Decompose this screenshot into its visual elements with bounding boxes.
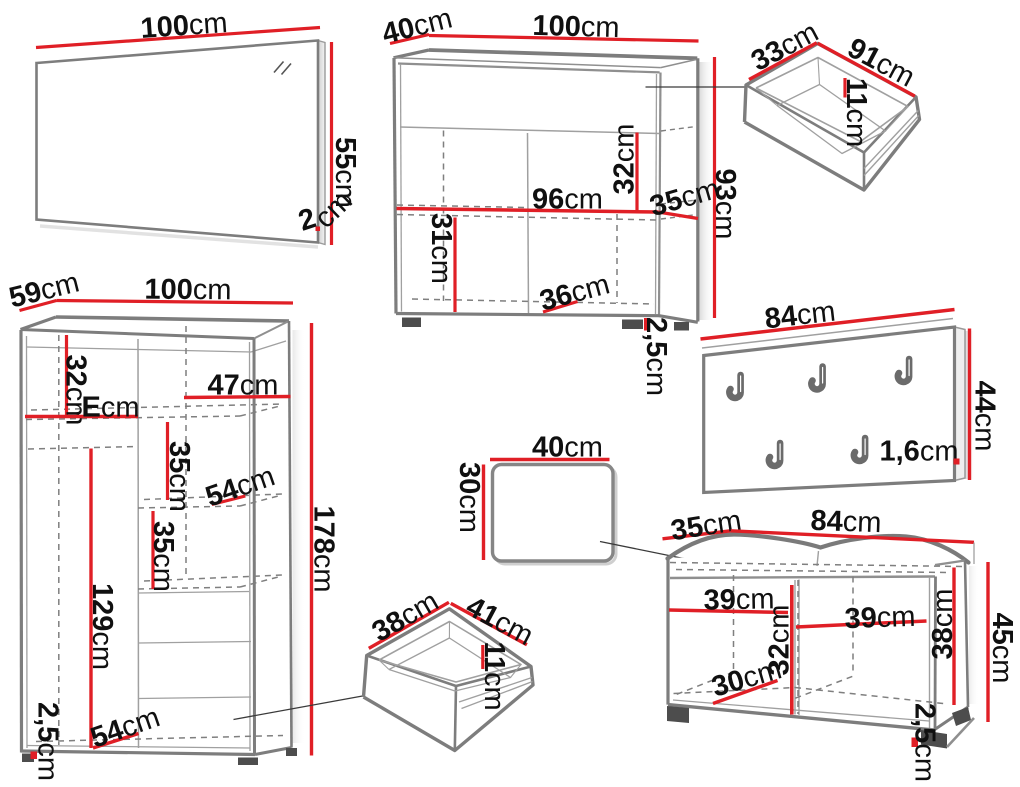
svg-text:38cm: 38cm xyxy=(927,589,959,660)
svg-text:39cm: 39cm xyxy=(844,601,916,635)
svg-text:30cm: 30cm xyxy=(453,462,485,533)
svg-text:45cm: 45cm xyxy=(986,613,1018,684)
svg-text:Ecm: Ecm xyxy=(81,392,139,424)
svg-text:32cm: 32cm xyxy=(609,124,641,195)
svg-text:31cm: 31cm xyxy=(425,213,457,284)
svg-text:35cm: 35cm xyxy=(163,441,195,512)
svg-text:44cm: 44cm xyxy=(969,381,1001,452)
svg-text:129cm: 129cm xyxy=(86,583,118,670)
svg-text:96cm: 96cm xyxy=(532,184,603,216)
svg-text:178cm: 178cm xyxy=(308,505,340,592)
svg-text:2,5cm: 2,5cm xyxy=(32,702,64,781)
svg-text:100cm: 100cm xyxy=(532,10,620,44)
svg-text:100cm: 100cm xyxy=(140,7,229,45)
svg-text:35cm: 35cm xyxy=(147,521,179,592)
svg-text:40cm: 40cm xyxy=(532,432,603,464)
svg-text:11cm: 11cm xyxy=(840,78,872,147)
svg-text:2,5cm: 2,5cm xyxy=(640,317,672,396)
svg-text:47cm: 47cm xyxy=(208,370,279,402)
svg-text:2,5cm: 2,5cm xyxy=(909,703,941,782)
svg-text:11cm: 11cm xyxy=(478,641,510,710)
svg-text:1,6cm: 1,6cm xyxy=(880,436,959,468)
svg-text:84cm: 84cm xyxy=(810,505,882,539)
svg-text:100cm: 100cm xyxy=(144,274,231,307)
